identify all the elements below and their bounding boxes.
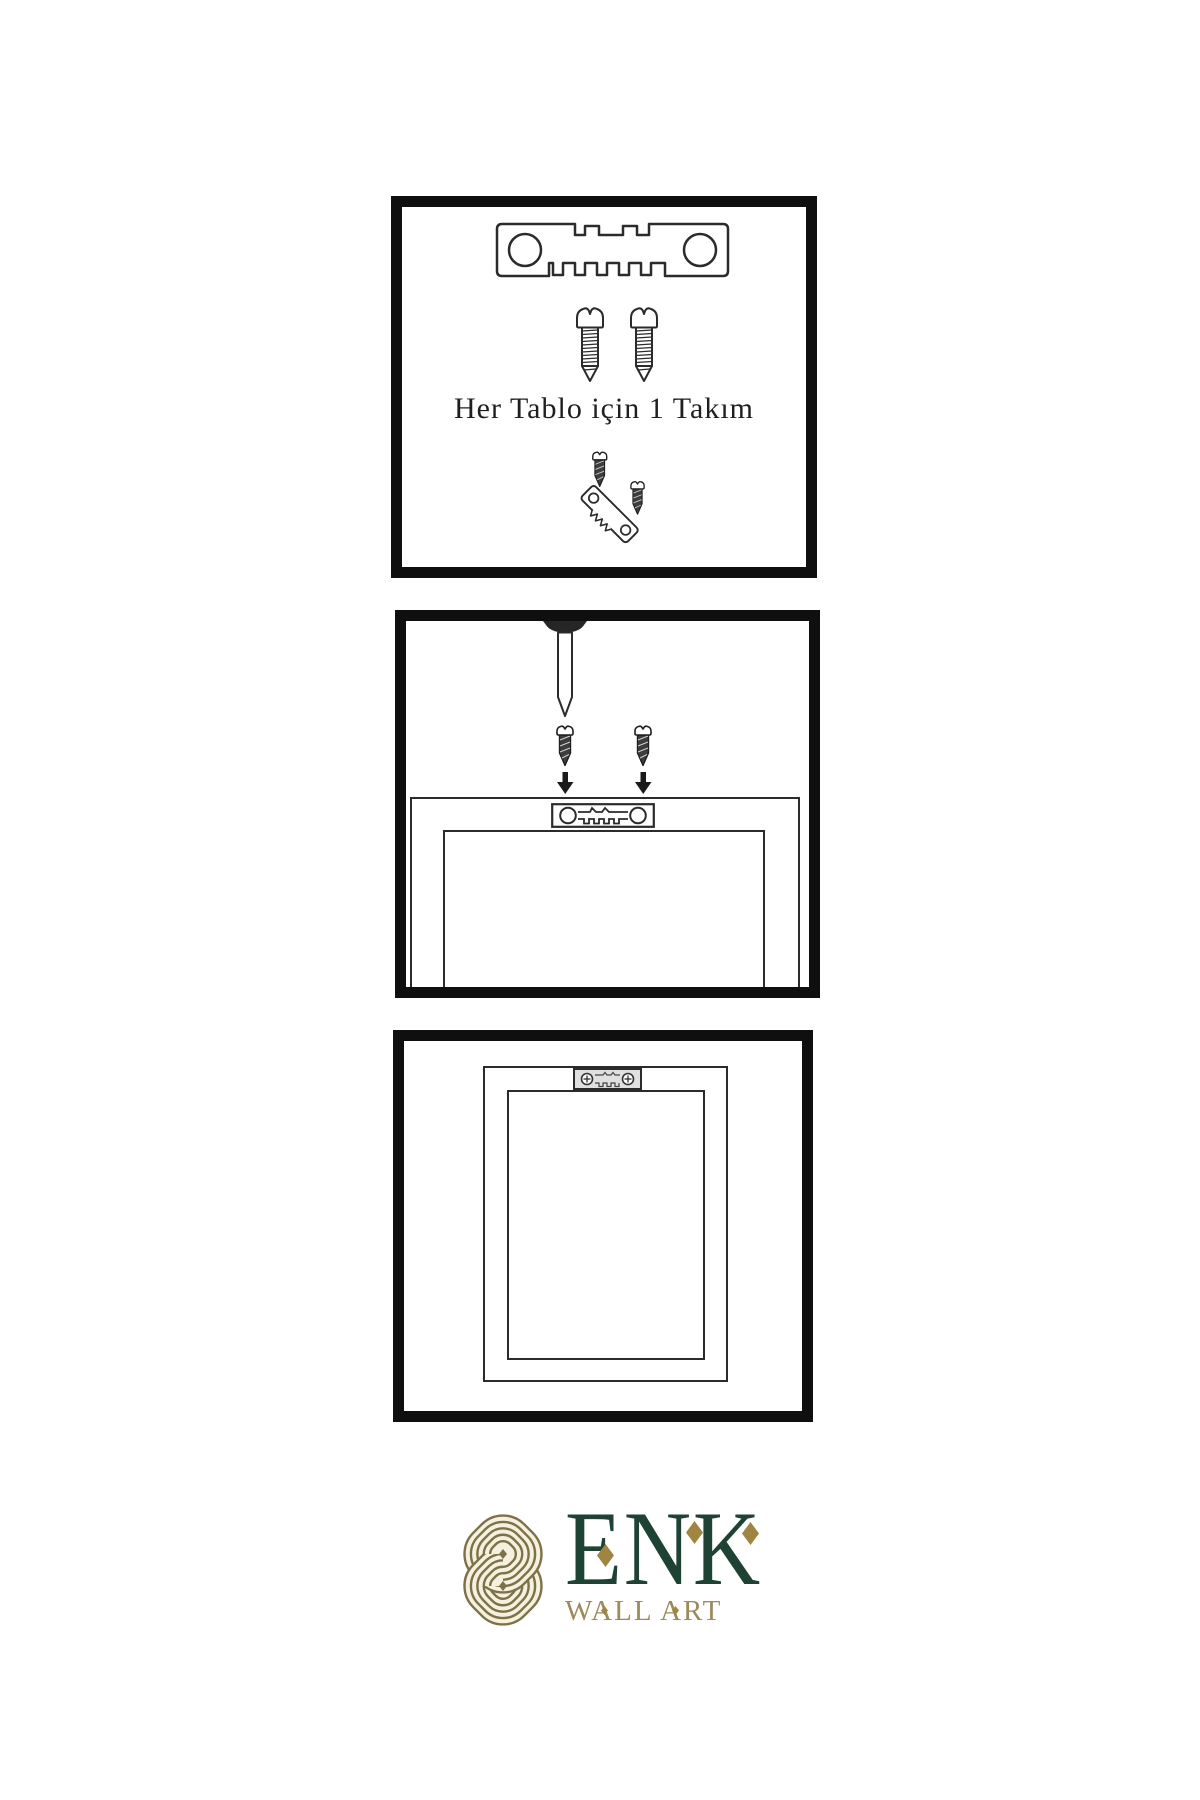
sawtooth-hanger-mounted-icon [551, 803, 655, 828]
enk-knot-emblem-icon [438, 1502, 568, 1638]
down-arrow-icon [635, 772, 652, 794]
brand-subtitle: WALL ART [565, 1597, 722, 1626]
kit-caption: Her Tablo için 1 Takım [391, 392, 817, 427]
screws-into-hanger-assembly-icon [578, 450, 658, 548]
screw-dark-icon [554, 724, 576, 768]
screw-icon [573, 305, 607, 383]
wall-nail-icon [543, 621, 587, 721]
frame-back-inner [507, 1090, 705, 1360]
frame-back-inner [443, 830, 765, 987]
brand-title: ENK [565, 1496, 762, 1602]
sawtooth-hanger-installed-icon [573, 1068, 642, 1090]
screw-dark-icon [632, 724, 654, 768]
sawtooth-hanger-icon [495, 222, 730, 278]
page: Her Tablo için 1 Takım [0, 0, 1200, 1800]
down-arrow-icon [557, 772, 574, 794]
screw-icon [627, 305, 661, 383]
